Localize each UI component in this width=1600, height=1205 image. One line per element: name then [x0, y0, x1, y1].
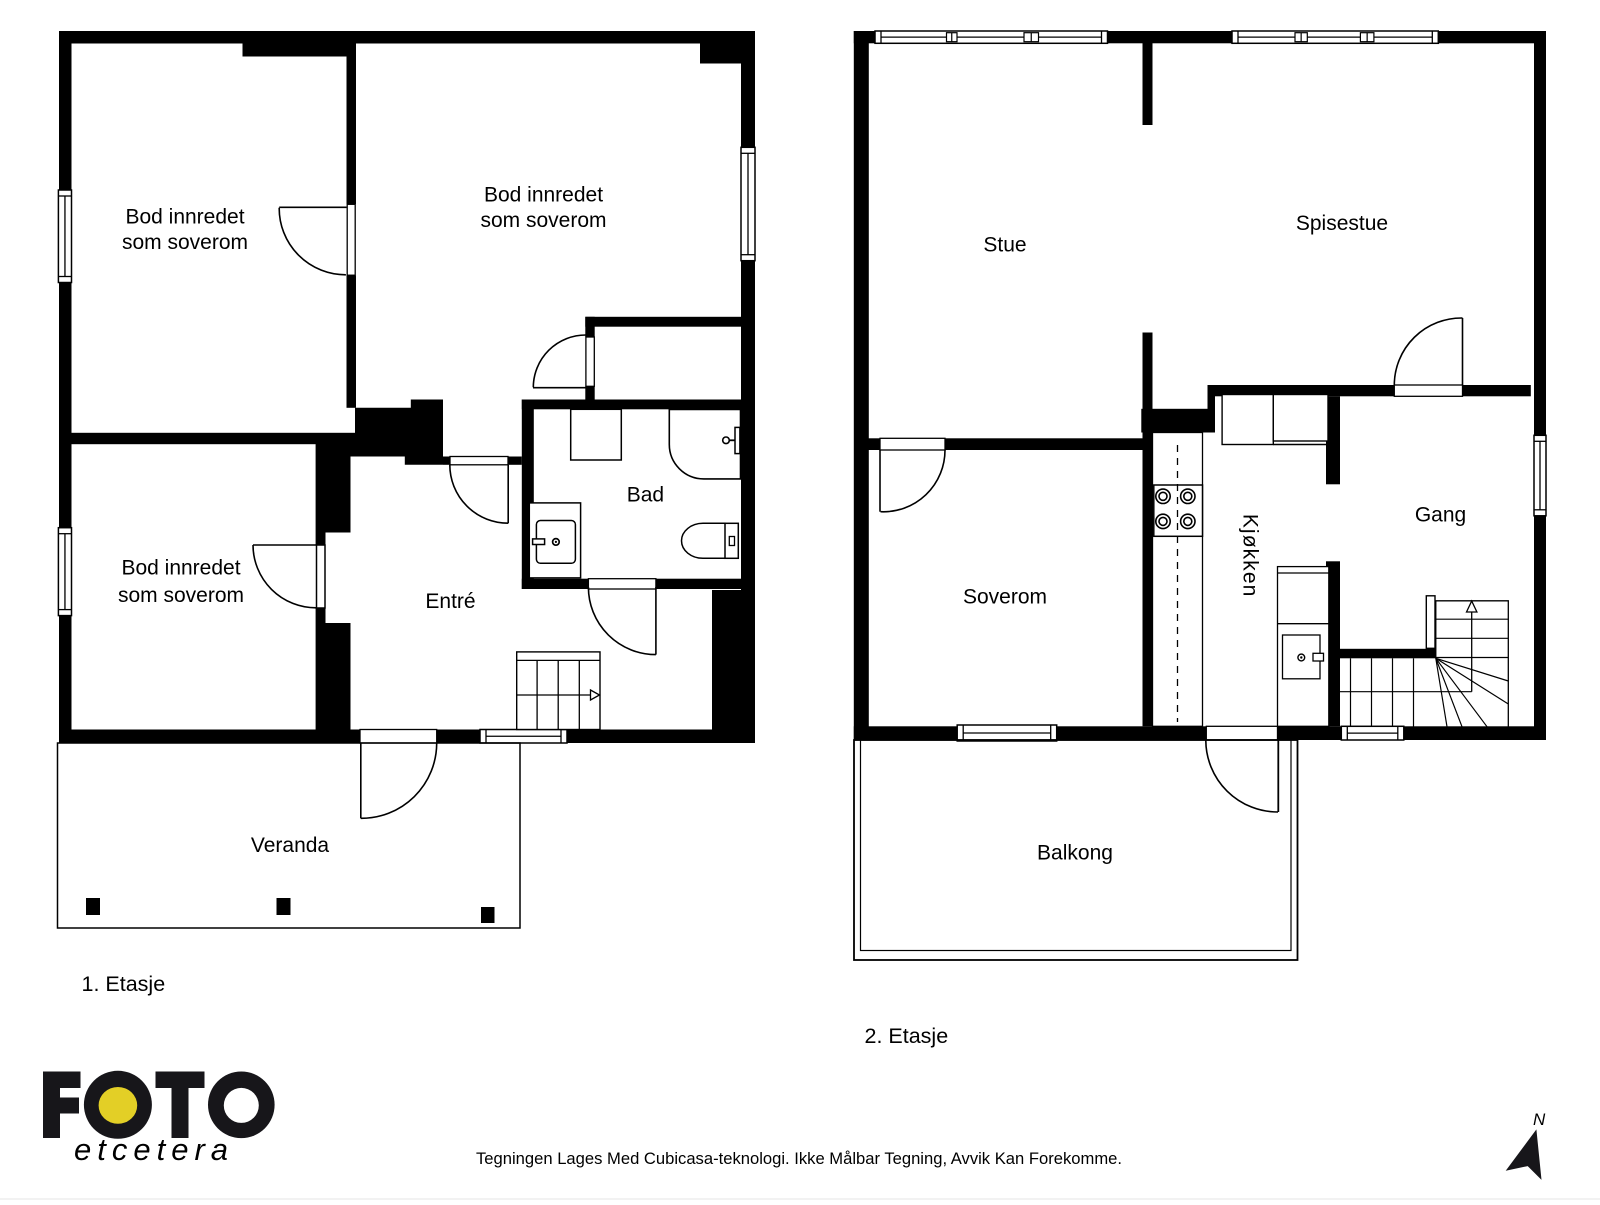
- svg-text:N: N: [1533, 1110, 1546, 1129]
- svg-text:Gang: Gang: [1415, 504, 1466, 527]
- svg-text:Soverom: Soverom: [963, 585, 1047, 608]
- svg-text:2. Etasje: 2. Etasje: [865, 1024, 949, 1048]
- svg-text:Bod innredet: Bod innredet: [121, 557, 240, 580]
- svg-text:Entré: Entré: [425, 590, 475, 613]
- svg-text:som soverom: som soverom: [480, 209, 606, 232]
- svg-text:Stue: Stue: [983, 233, 1026, 256]
- svg-text:Bad: Bad: [627, 483, 664, 506]
- svg-text:Balkong: Balkong: [1037, 842, 1113, 865]
- svg-text:Bod innredet: Bod innredet: [484, 184, 603, 207]
- svg-text:Veranda: Veranda: [251, 834, 330, 857]
- svg-text:Bod innredet: Bod innredet: [125, 206, 244, 229]
- svg-text:Kjøkken: Kjøkken: [1238, 514, 1261, 598]
- svg-text:Tegningen Lages Med Cubicasa-t: Tegningen Lages Med Cubicasa-teknologi. …: [476, 1149, 1122, 1168]
- svg-text:Spisestue: Spisestue: [1296, 212, 1388, 235]
- svg-text:etcetera: etcetera: [74, 1132, 234, 1167]
- svg-text:som soverom: som soverom: [122, 231, 248, 254]
- svg-text:1. Etasje: 1. Etasje: [82, 972, 166, 996]
- svg-text:som soverom: som soverom: [118, 584, 244, 607]
